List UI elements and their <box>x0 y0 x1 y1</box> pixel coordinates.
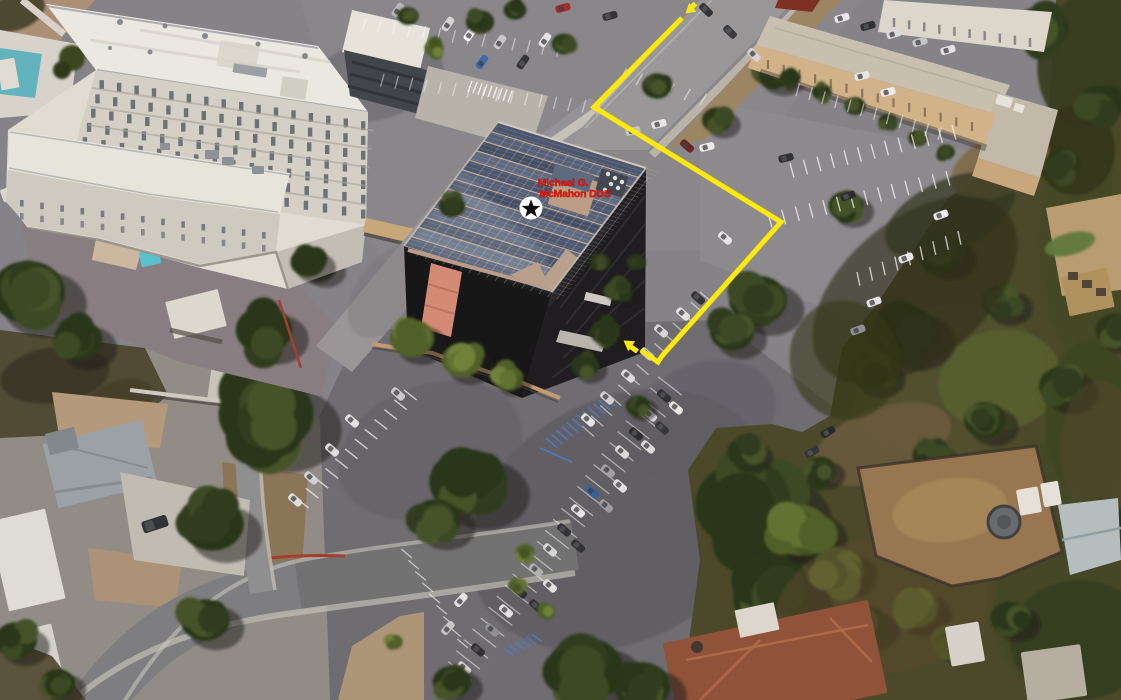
svg-text:McMahon DDS: McMahon DDS <box>539 188 610 200</box>
